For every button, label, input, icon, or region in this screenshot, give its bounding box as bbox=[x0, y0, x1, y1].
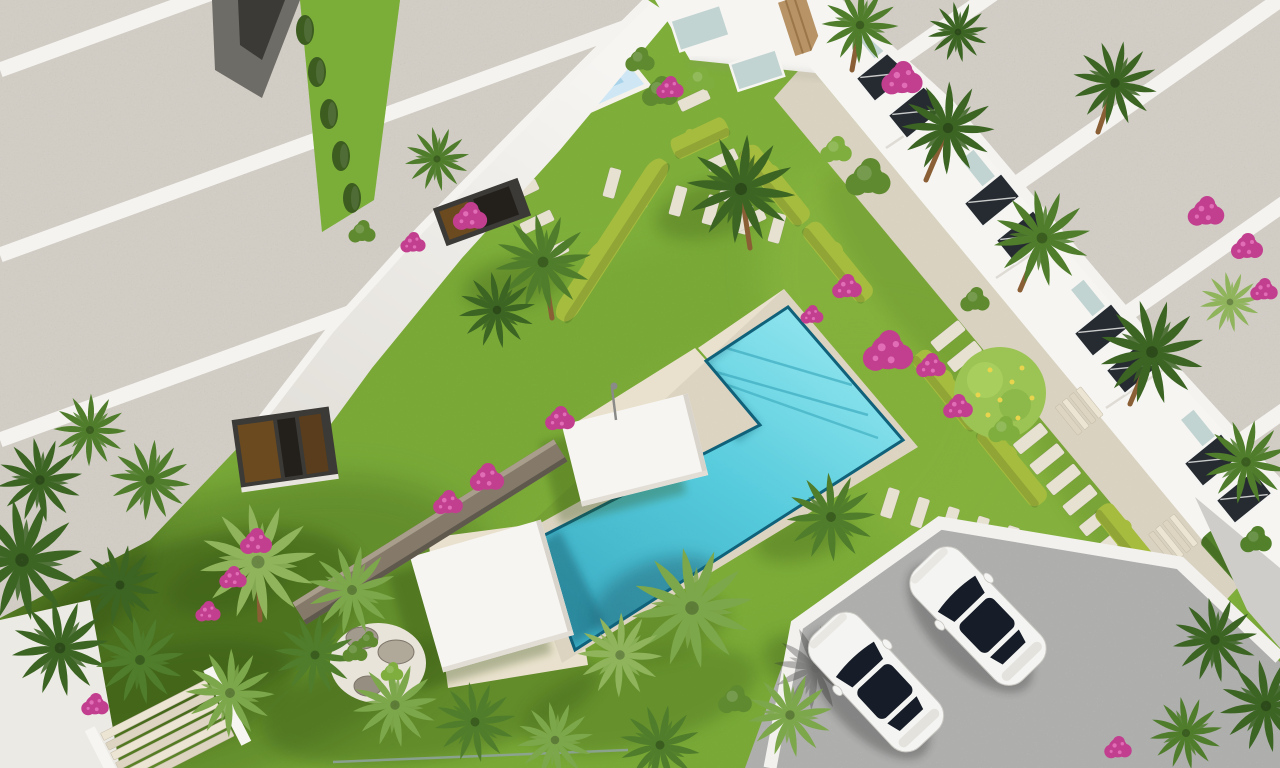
aerial-render bbox=[0, 0, 1280, 768]
cypress-tree bbox=[308, 57, 326, 87]
cypress-tree bbox=[320, 99, 338, 129]
cypress-tree bbox=[343, 183, 361, 213]
screenshot-root bbox=[0, 0, 1280, 768]
cypress-tree bbox=[296, 15, 314, 45]
facade-window bbox=[232, 407, 339, 493]
cypress-tree bbox=[332, 141, 350, 171]
